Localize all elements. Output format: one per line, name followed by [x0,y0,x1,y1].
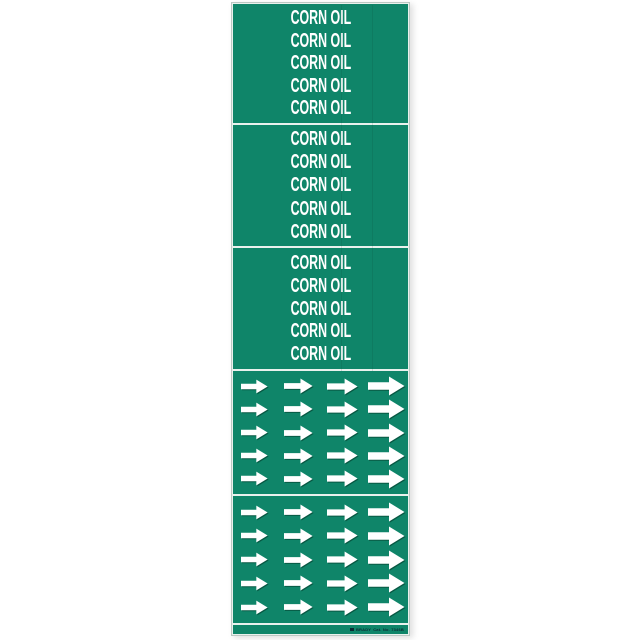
pipe-marker-label: CORN OIL [233,297,408,320]
arrow-strip-column [277,371,319,495]
pipe-marker-label: CORN OIL [233,174,408,197]
right-arrow-icon [241,576,268,591]
catalog-number: Cat. No. 7346B [373,628,404,632]
right-arrow-icon [241,471,268,486]
right-arrow-icon [284,401,313,417]
pipe-marker-label: CORN OIL [233,197,408,220]
brady-logo-icon [350,628,354,631]
right-arrow-icon [327,527,358,544]
sheet-footer: BRADY Cat. No. 7346B [233,625,408,634]
right-arrow-icon [368,446,405,466]
pipe-marker-label: CORN OIL [233,97,408,120]
arrow-strip-column [322,496,364,623]
pipe-marker-label: CORN OIL [233,151,408,174]
right-arrow-icon [368,469,405,489]
right-arrow-icon [284,599,313,615]
legend-text: CORN OIL [290,199,351,219]
right-arrow-icon [368,423,405,443]
legend-text: CORN OIL [290,31,351,51]
pipe-marker-label: CORN OIL [233,320,408,343]
pipe-marker-label: CORN OIL [233,7,408,30]
legend-panel-3: CORN OIL CORN OILCORN OILCORN OILCORN OI… [233,248,408,369]
legend-text: CORN OIL [290,344,351,364]
right-arrow-icon [284,528,313,544]
right-arrow-icon [327,447,358,464]
arrow-section-2 [233,496,408,623]
right-arrow-icon [241,448,268,463]
legend-text: CORN OIL [290,152,351,172]
right-arrow-icon [368,376,405,396]
legend-text: CORN OIL [290,321,351,341]
right-arrow-icon [284,552,313,568]
right-arrow-icon [284,448,313,464]
right-arrow-icon [241,528,268,543]
right-arrow-icon [327,401,358,418]
right-arrow-icon [284,425,313,441]
right-arrow-icon [284,575,313,591]
arrow-grid [233,371,408,495]
arrow-strip-column [233,496,275,623]
right-arrow-icon [241,600,268,615]
brand-text: BRADY [356,628,371,632]
legend-text: CORN OIL [290,53,351,73]
right-arrow-icon [327,599,358,616]
right-arrow-icon [368,526,405,546]
right-arrow-icon [368,597,405,617]
legend-lines: CORN OIL CORN OILCORN OILCORN OILCORN OI… [233,4,408,123]
right-arrow-icon [368,502,405,522]
legend-text: CORN OIL [290,76,351,96]
arrow-strip-column [366,496,408,623]
pipe-marker-label: CORN OIL [233,128,408,151]
arrow-grid [233,496,408,623]
legend-text: CORN OIL [290,98,351,118]
right-arrow-icon [284,471,313,487]
pipe-marker-label: CORN OIL [233,220,408,243]
right-arrow-icon [327,575,358,592]
legend-text: CORN OIL [290,8,351,28]
legend-text: CORN OIL [290,276,351,296]
pipe-marker-label: CORN OIL [233,274,408,297]
right-arrow-icon [241,552,268,567]
legend-text: CORN OIL [290,253,351,273]
arrow-strip-column [233,371,275,495]
right-arrow-icon [368,573,405,593]
pipe-marker-label: CORN OIL [233,343,408,366]
legend-text: CORN OIL [290,222,351,242]
right-arrow-icon [368,399,405,419]
pipe-marker-label: CORN OIL [233,251,408,274]
right-arrow-icon [327,378,358,395]
legend-lines: CORN OIL CORN OILCORN OILCORN OILCORN OI… [233,125,408,247]
right-arrow-icon [241,402,268,417]
legend-lines: CORN OIL CORN OILCORN OILCORN OILCORN OI… [233,248,408,369]
pipe-marker-label: CORN OIL [233,52,408,75]
right-arrow-icon [284,504,313,520]
arrow-section-1 [233,371,408,495]
pipe-marker-label: CORN OIL [233,30,408,53]
pipe-marker-label: CORN OIL [233,75,408,98]
legend-text: CORN OIL [290,299,351,319]
right-arrow-icon [327,551,358,568]
right-arrow-icon [241,379,268,394]
right-arrow-icon [241,505,268,520]
right-arrow-icon [284,378,313,394]
arrow-strip-column [277,496,319,623]
pipe-marker-sheet: CORN OIL CORN OILCORN OILCORN OILCORN OI… [231,2,410,636]
arrow-strip-column [366,371,408,495]
legend-text: CORN OIL [290,175,351,195]
right-arrow-icon [368,550,405,570]
right-arrow-icon [327,504,358,521]
right-arrow-icon [241,425,268,440]
right-arrow-icon [327,424,358,441]
legend-panel-2: CORN OIL CORN OILCORN OILCORN OILCORN OI… [233,125,408,247]
legend-panel-1: CORN OIL CORN OILCORN OILCORN OILCORN OI… [233,4,408,123]
legend-text: CORN OIL [290,129,351,149]
arrow-strip-column [322,371,364,495]
right-arrow-icon [327,470,358,487]
